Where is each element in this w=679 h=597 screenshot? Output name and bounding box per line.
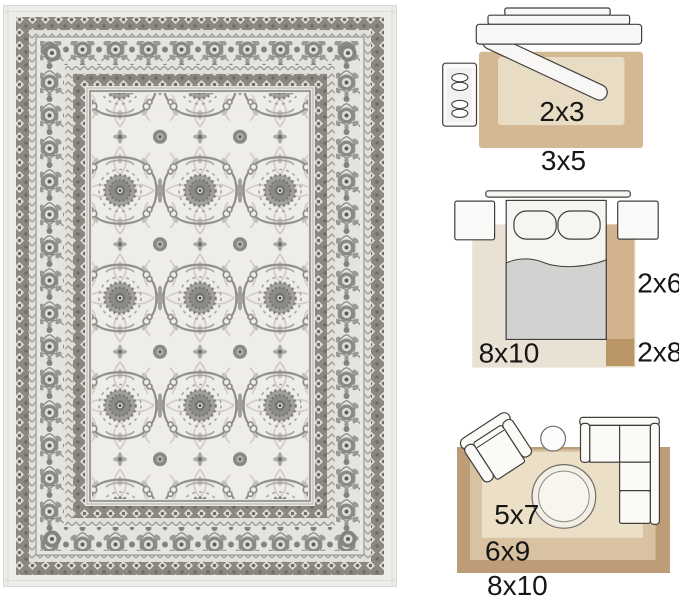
svg-text:5x7: 5x7 (494, 499, 539, 530)
svg-text:6x9: 6x9 (485, 536, 530, 567)
svg-text:3x5: 3x5 (541, 145, 586, 176)
svg-text:2x8: 2x8 (637, 337, 679, 368)
svg-text:8x10: 8x10 (479, 338, 540, 369)
svg-text:8x10: 8x10 (487, 570, 548, 597)
svg-text:2x6: 2x6 (637, 268, 679, 299)
svg-text:2x3: 2x3 (539, 96, 584, 127)
